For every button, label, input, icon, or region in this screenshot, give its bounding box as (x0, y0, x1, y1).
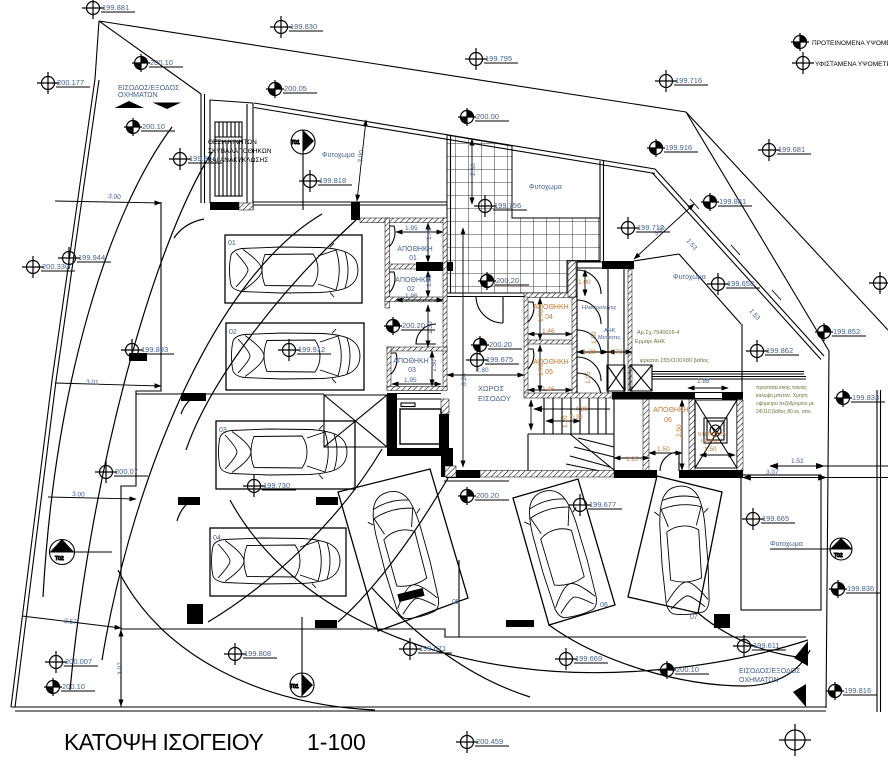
svg-text:1.40: 1.40 (426, 227, 433, 240)
svg-text:199.862: 199.862 (766, 346, 793, 355)
svg-text:ΧΩΡΟΣ: ΧΩΡΟΣ (478, 384, 504, 393)
svg-text:1.20: 1.20 (583, 349, 596, 356)
svg-text:04: 04 (545, 314, 553, 321)
svg-text:200.00: 200.00 (476, 112, 499, 121)
svg-text:ΟΧΗΜΑΤΩΝ: ΟΧΗΜΑΤΩΝ (739, 677, 779, 684)
svg-text:1.20: 1.20 (562, 415, 569, 428)
svg-text:199.818: 199.818 (319, 176, 346, 185)
svg-text:200.20: 200.20 (476, 491, 499, 500)
svg-text:1.88: 1.88 (697, 378, 710, 385)
svg-text:0.30: 0.30 (570, 414, 583, 421)
svg-text:199.756: 199.756 (494, 201, 521, 210)
svg-text:T02: T02 (834, 553, 843, 559)
svg-text:200.10: 200.10 (150, 58, 173, 67)
svg-text:Ηλεκτρολογος: Ηλεκτρολογος (582, 305, 617, 311)
svg-text:199.830: 199.830 (290, 22, 317, 31)
svg-text:6.20: 6.20 (461, 373, 468, 386)
svg-text:200.10: 200.10 (142, 122, 165, 131)
svg-text:01: 01 (409, 255, 417, 262)
svg-text:199.671: 199.671 (419, 644, 446, 653)
svg-text:3.57: 3.57 (64, 618, 78, 626)
svg-text:1-100: 1-100 (307, 729, 366, 755)
svg-text:05: 05 (452, 599, 460, 606)
svg-text:υψομετρο πεζοδρομιου με: υψομετρο πεζοδρομιου με (756, 401, 815, 407)
svg-text:06: 06 (664, 417, 672, 424)
svg-text:04: 04 (213, 535, 221, 542)
svg-text:ΑΠΟΘΗΚΗ: ΑΠΟΘΗΚΗ (653, 407, 688, 414)
svg-text:ΝΕΡΟΥ: ΝΕΡΟΥ (701, 439, 719, 445)
svg-text:3.00: 3.00 (108, 193, 122, 201)
svg-text:ΕΙΣΟΔΟΥ: ΕΙΣΟΔΟΥ (478, 394, 511, 403)
svg-text:προστατευτικης ταινιας: προστατευτικης ταινιας (756, 385, 807, 391)
svg-text:2.50: 2.50 (676, 424, 683, 437)
svg-text:01: 01 (228, 240, 236, 247)
svg-text:199.611: 199.611 (753, 641, 780, 650)
svg-text:02: 02 (407, 286, 415, 293)
svg-text:1.95: 1.95 (405, 293, 418, 300)
svg-text:ΑΠΟΘΗΚΗ: ΑΠΟΘΗΚΗ (393, 358, 428, 365)
svg-text:καλυψη μπετον. Χρηση: καλυψη μπετον. Χρηση (756, 393, 808, 399)
svg-text:199.881: 199.881 (719, 197, 746, 206)
svg-text:3.00: 3.00 (72, 491, 85, 498)
svg-text:Ερμαρι ΑΗΚ: Ερμαρι ΑΗΚ (635, 339, 665, 345)
svg-text:199.795: 199.795 (485, 54, 512, 63)
svg-text:ΕΙΣΟΔΟΣ/ΕΞΟΔΟΣ: ΕΙΣΟΔΟΣ/ΕΞΟΔΟΣ (739, 668, 801, 675)
svg-text:Φυτοχωμα: Φυτοχωμα (322, 152, 355, 159)
svg-text:1.05: 1.05 (585, 371, 592, 384)
svg-text:ΣΚΥΒΑΛΑΠΟΘΗΚΩΝ: ΣΚΥΒΑΛΑΠΟΘΗΚΩΝ (208, 148, 272, 155)
svg-text:T02: T02 (55, 556, 64, 562)
svg-text:1.50: 1.50 (431, 359, 438, 372)
svg-text:Μετρητες: Μετρητες (598, 335, 621, 341)
svg-text:199.836: 199.836 (847, 584, 874, 593)
svg-text:06: 06 (600, 602, 608, 609)
svg-text:200.07: 200.07 (115, 467, 138, 476)
svg-text:2.80: 2.80 (476, 367, 489, 374)
svg-text:199.665: 199.665 (762, 514, 789, 523)
svg-text:Φυτοχωμα: Φυτοχωμα (529, 184, 562, 191)
svg-text:200.10: 200.10 (676, 665, 699, 674)
svg-text:3.07: 3.07 (766, 469, 779, 476)
svg-text:200.007: 200.007 (65, 657, 92, 666)
svg-text:200.20: 200.20 (402, 321, 425, 330)
svg-text:Φυτοχωμα: Φυτοχωμα (673, 274, 706, 281)
svg-text:03: 03 (408, 367, 416, 374)
svg-text:0.70: 0.70 (610, 349, 623, 356)
svg-text:199.881: 199.881 (102, 3, 129, 12)
svg-text:199.716: 199.716 (675, 76, 702, 85)
svg-text:03: 03 (219, 427, 227, 434)
svg-text:3.07: 3.07 (117, 662, 124, 675)
svg-text:ΥΦΙΣΤΑΜΕΝΑ ΥΨΟΜΕΤΡΑ: ΥΦΙΣΤΑΜΕΝΑ ΥΨΟΜΕΤΡΑ (815, 61, 888, 68)
svg-text:199.808: 199.808 (244, 649, 271, 658)
svg-text:1.52: 1.52 (791, 458, 804, 465)
svg-text:199.669: 199.669 (575, 654, 602, 663)
svg-text:1.95: 1.95 (405, 225, 418, 232)
svg-text:ΘΕΣΗ ΚΙΝΗΤΩΝ: ΘΕΣΗ ΚΙΝΗΤΩΝ (208, 139, 257, 146)
svg-text:200.177: 200.177 (57, 78, 84, 87)
svg-text:Φυτοχωμα: Φυτοχωμα (770, 541, 803, 548)
svg-text:3.01: 3.01 (86, 379, 99, 386)
svg-text:07: 07 (690, 614, 698, 621)
svg-text:200.10: 200.10 (62, 682, 85, 691)
svg-text:T01: T01 (290, 684, 299, 690)
svg-text:199.916: 199.916 (665, 143, 692, 152)
svg-text:199.681: 199.681 (778, 145, 805, 154)
svg-text:1.70: 1.70 (538, 309, 545, 322)
svg-text:199.816: 199.816 (844, 686, 871, 695)
svg-text:199.944: 199.944 (78, 253, 105, 262)
svg-text:199.675: 199.675 (486, 355, 513, 364)
svg-text:200.330: 200.330 (42, 262, 69, 271)
svg-text:T01: T01 (291, 140, 300, 146)
svg-text:1.70: 1.70 (538, 363, 545, 376)
svg-text:1.50: 1.50 (657, 446, 670, 453)
svg-text:1.30: 1.30 (427, 321, 434, 334)
svg-text:02: 02 (229, 329, 237, 336)
svg-text:ΑΠΟΘΗΚΗ: ΑΠΟΘΗΚΗ (397, 246, 432, 253)
svg-text:1.35: 1.35 (426, 274, 433, 287)
svg-text:05: 05 (545, 369, 553, 376)
svg-text:1.46: 1.46 (542, 386, 555, 393)
svg-text:1.20: 1.20 (626, 456, 639, 463)
svg-text:200.20: 200.20 (496, 276, 519, 285)
svg-text:1.95: 1.95 (404, 377, 417, 384)
svg-text:ΚΑΤΟΨΗ ΙΣΟΓΕΙΟΥ: ΚΑΤΟΨΗ ΙΣΟΓΕΙΟΥ (64, 729, 263, 755)
svg-text:ΠΡΟΤΕΙΝΟΜΕΝΑ ΥΨΟΜΕΤΡΑ: ΠΡΟΤΕΙΝΟΜΕΝΑ ΥΨΟΜΕΤΡΑ (812, 40, 888, 47)
svg-text:199.833: 199.833 (852, 393, 879, 402)
svg-text:200.05: 200.05 (284, 84, 307, 93)
svg-text:ΝΤΕΠΟΖΙΤΑ: ΝΤΕΠΟΖΙΤΑ (698, 432, 727, 438)
svg-text:200.20: 200.20 (489, 340, 512, 349)
svg-text:ΕΙΣΟΔΟΣ/ΕΞΟΔΟΣ: ΕΙΣΟΔΟΣ/ΕΞΟΔΟΣ (118, 85, 180, 92)
svg-text:1.46: 1.46 (542, 328, 555, 335)
svg-text:1.50: 1.50 (591, 331, 598, 344)
svg-text:199.852: 199.852 (833, 327, 860, 336)
svg-text:199.677: 199.677 (589, 500, 616, 509)
svg-text:ΑΗΚ: ΑΗΚ (604, 328, 616, 334)
svg-text:φρεατιο 155X100X80 βαθος: φρεατιο 155X100X80 βαθος (640, 358, 709, 364)
svg-text:2Φ110 βαθος 80 εκ. απο: 2Φ110 βαθος 80 εκ. απο (756, 409, 811, 415)
svg-text:ΟΧΗΜΑΤΩΝ: ΟΧΗΜΑΤΩΝ (118, 92, 158, 99)
svg-text:2.30: 2.30 (470, 163, 477, 176)
svg-text:200.459: 200.459 (476, 737, 503, 746)
svg-text:ΚΑΙ ΑΝΑΚΥΚΛΩΣΗΣ: ΚΑΙ ΑΝΑΚΥΚΛΩΣΗΣ (208, 157, 268, 164)
svg-text:1.50: 1.50 (704, 446, 717, 453)
svg-text:199.730: 199.730 (263, 481, 290, 490)
svg-text:Αρ.Σχ.7540016-4: Αρ.Σχ.7540016-4 (637, 330, 679, 336)
svg-text:199.893: 199.893 (141, 345, 168, 354)
svg-text:199.658: 199.658 (727, 279, 754, 288)
svg-text:1.00: 1.00 (578, 279, 591, 286)
svg-text:199.912: 199.912 (298, 345, 325, 354)
svg-text:4.20: 4.20 (575, 406, 588, 413)
